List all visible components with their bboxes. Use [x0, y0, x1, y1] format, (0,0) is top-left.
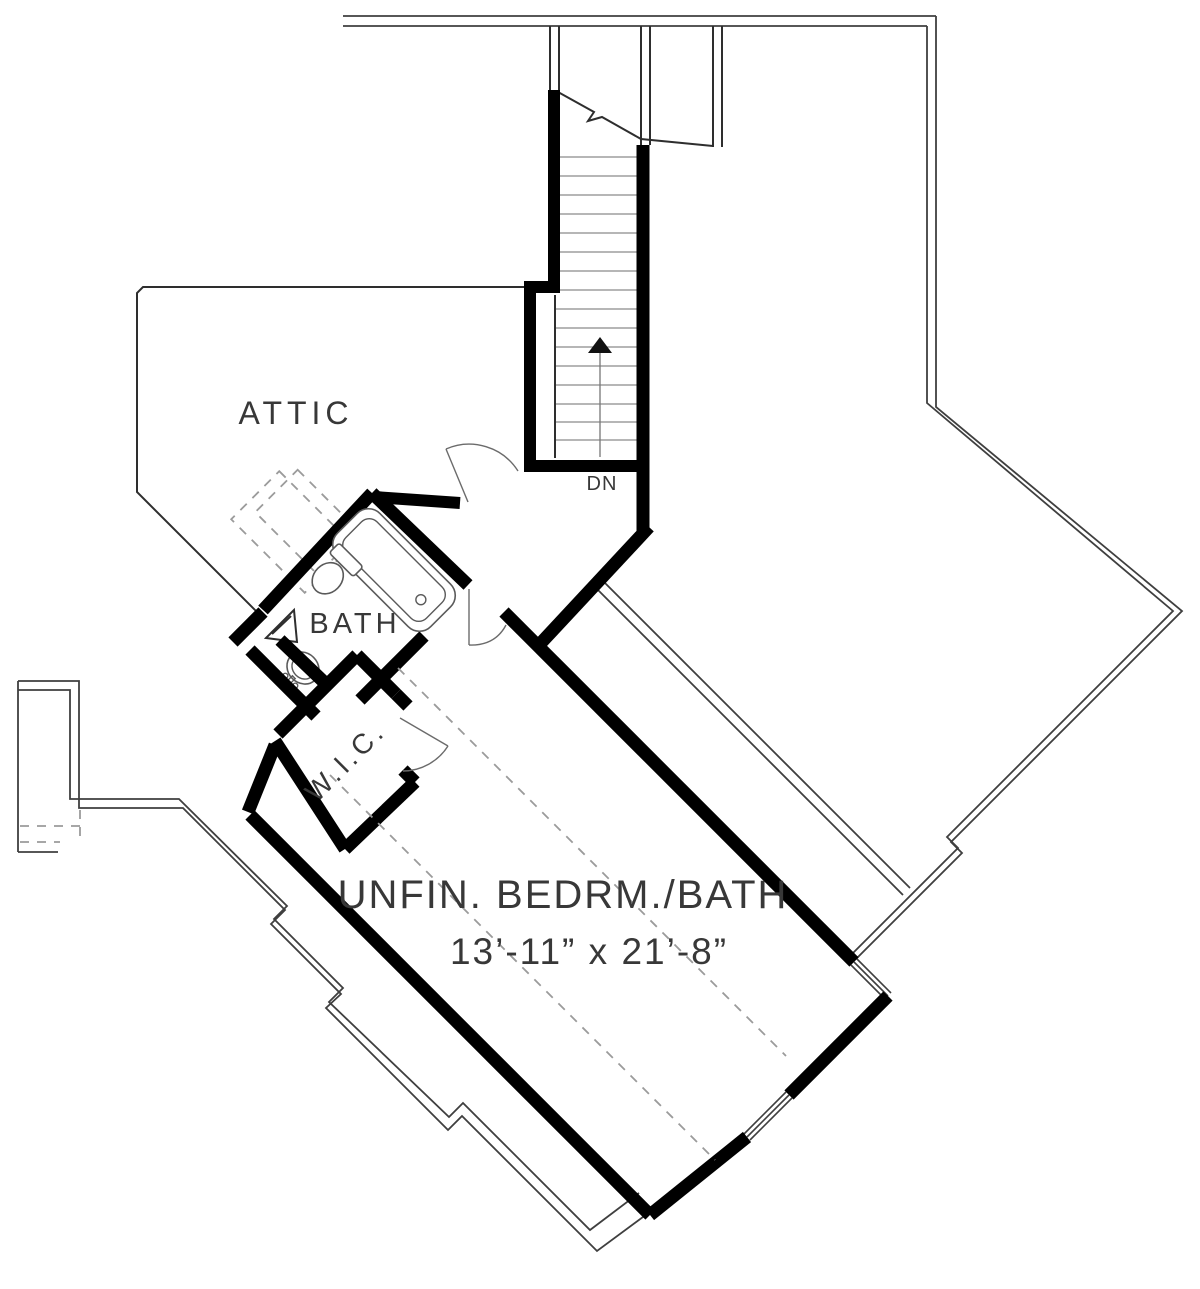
- roof-valley-line-a: [601, 579, 910, 888]
- floor-plan-drawing: DN: [0, 0, 1200, 1289]
- wic-wall-se: [345, 782, 415, 849]
- attic-door-leaf: [446, 449, 468, 502]
- attic-door-swing-arc: [446, 444, 518, 471]
- stair-bottom-bar: [556, 460, 643, 472]
- roof-edge-right-inner: [852, 26, 1173, 954]
- bedroom-label: UNFIN. BEDRM./BATH: [338, 873, 789, 917]
- bedroom-dimensions: 13’-11” x 21’-8”: [450, 931, 728, 972]
- roof-outline: [343, 16, 1182, 959]
- wic-door-leaf: [400, 718, 448, 746]
- attic-outline: [137, 287, 548, 617]
- bath-label: BATH: [309, 608, 400, 640]
- bedroom-window-b: [747, 1095, 789, 1137]
- bath-wall-w-stub: [233, 612, 263, 642]
- stair-direction-label: DN: [587, 473, 618, 495]
- bedroom-window-a: [750, 1098, 792, 1140]
- wic-door-swing-arc: [403, 746, 448, 771]
- bath-wall-north-stub: [374, 497, 460, 503]
- linen-door-line: [272, 616, 291, 634]
- attic-door-jamb: [524, 460, 558, 472]
- stairwell: DN: [524, 26, 722, 644]
- unfinished-bedroom: UNFIN. BEDRM./BATH 13’-11” x 21’-8”: [250, 612, 891, 1215]
- bath-door-swing-arc: [469, 625, 506, 645]
- roof-slope-dashed-1: [398, 668, 786, 1056]
- stair-break-line: [558, 92, 713, 146]
- stair-direction-arrow: [588, 337, 612, 353]
- attic-label: ATTIC: [238, 395, 353, 431]
- wic-jamb-upper: [396, 694, 408, 706]
- wic-west-stub: [248, 745, 275, 812]
- wic-label: W.I.C.: [299, 715, 392, 808]
- bedroom-corner-window-b: [854, 962, 888, 996]
- attic-room: [137, 287, 548, 617]
- bedroom-wall-se-lower: [650, 1137, 747, 1215]
- roof-edge-right-outer: [856, 16, 1182, 959]
- floor-plan-sheet: DN: [0, 0, 1200, 1289]
- bedroom-window-c: [744, 1092, 786, 1134]
- stair-wall-corner-diagonal: [540, 527, 649, 644]
- attic-door: [446, 444, 518, 502]
- stair-treads: [556, 157, 637, 440]
- bedroom-wall-se-upper: [789, 996, 888, 1095]
